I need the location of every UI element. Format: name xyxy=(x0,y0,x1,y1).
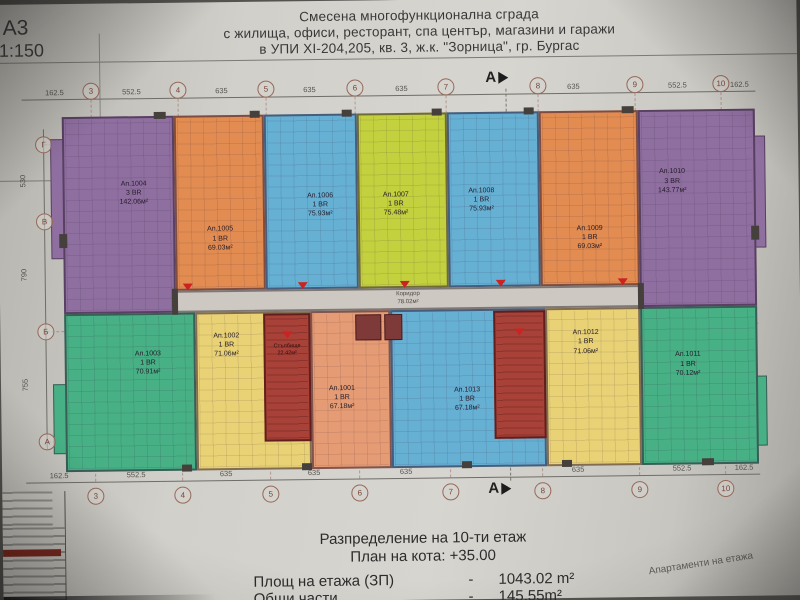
grid-column-bubble: 10 xyxy=(717,480,734,497)
grid-column-bubble: 4 xyxy=(169,82,186,99)
footer-block: Разпределение на 10-ти етаж План на кота… xyxy=(213,527,634,600)
apartment-number: Ап.1012 xyxy=(573,328,599,337)
apartment-rooms: 1 BR xyxy=(213,340,239,349)
apartment-1010: Ап.1010 3 BR 143.77м² xyxy=(638,109,757,307)
apartment-number: Ап.1005 xyxy=(207,225,233,234)
section-arrow-icon xyxy=(498,71,508,83)
adjacent-drawing-band xyxy=(3,549,61,557)
dim-label: 552.5 xyxy=(673,463,692,472)
grid-column-bubble: 3 xyxy=(82,83,99,100)
corridor-label: Коридор xyxy=(396,291,420,299)
dim-label: 162.5 xyxy=(50,471,69,480)
section-marker-bottom: А xyxy=(488,480,511,497)
apartment-rooms: 3 BR xyxy=(658,176,687,185)
grid-column-bubble: 4 xyxy=(174,487,191,504)
grid-column-bubble: 8 xyxy=(534,482,551,499)
wall-column xyxy=(751,226,759,240)
utility-room xyxy=(384,314,402,340)
dim-label: 635 xyxy=(220,469,233,478)
apartment-number: Ап.1006 xyxy=(307,191,333,200)
apartment-area: 143.77м² xyxy=(658,186,687,195)
dimension-line-left xyxy=(43,129,48,449)
apartment-area: 67.18м² xyxy=(454,403,480,412)
apartment-area: 75.93м² xyxy=(469,204,495,213)
wall-column xyxy=(154,112,166,119)
wall-column xyxy=(182,465,192,472)
apartment-rooms: 1 BR xyxy=(468,195,494,204)
wall-column xyxy=(702,458,714,465)
wall-column xyxy=(524,107,534,114)
apartment-rooms: 1 BR xyxy=(573,337,599,346)
apartment-1005: Ап.1005 1 BR 69.03м² xyxy=(174,115,266,291)
dim-label: 530 xyxy=(18,175,27,188)
grid-column-bubble: 5 xyxy=(257,81,274,98)
grid-column-bubble: 6 xyxy=(346,79,363,96)
apartment-rooms: 3 BR xyxy=(119,189,148,198)
apartment-number: Ап.1004 xyxy=(119,180,148,189)
apartment-area: 75.93м² xyxy=(307,209,333,218)
apartment-area: 67.18м² xyxy=(329,402,355,411)
adjacent-drawing-fragment xyxy=(2,491,52,528)
dim-label: 635 xyxy=(303,85,316,94)
apartment-number: Ап.1007 xyxy=(383,190,409,199)
grid-row-bubble: Б xyxy=(37,323,54,340)
grid-column-bubble: 7 xyxy=(442,483,459,500)
apartment-rooms: 1 BR xyxy=(329,393,355,402)
grid-column-bubble: 6 xyxy=(351,484,368,501)
dim-label: 635 xyxy=(572,465,585,474)
apartment-number: Ап.1011 xyxy=(675,350,701,359)
stairwell-area: 22.42м² xyxy=(274,350,301,357)
common-parts-value: 145.55m² xyxy=(499,587,563,600)
dim-label: 552.5 xyxy=(668,80,687,89)
drawing-photo: А3 1:150 Смесена многофункционална сград… xyxy=(0,0,800,600)
apartment-number: Ап.1003 xyxy=(135,349,161,358)
entrance-marker xyxy=(183,284,193,291)
section-letter: А xyxy=(488,480,499,497)
grid-row-bubble: А xyxy=(39,433,56,450)
adjacent-drawing-fragment xyxy=(3,527,66,600)
drawing-title: Смесена многофункционална сграда с жилищ… xyxy=(146,4,692,59)
entrance-marker xyxy=(400,281,410,288)
apartment-1009: Ап.1009 1 BR 69.03м² xyxy=(539,110,640,286)
common-parts-label: Общи части xyxy=(214,588,444,600)
apartment-number: Ап.1013 xyxy=(454,385,480,394)
apartment-rooms: 1 BR xyxy=(577,233,603,242)
entrance-marker xyxy=(514,328,524,335)
apartment-area: 69.03м² xyxy=(577,242,603,251)
wall-column xyxy=(172,289,178,315)
apartment-rooms: 1 BR xyxy=(454,394,480,403)
dim-label: 635 xyxy=(400,467,413,476)
grid-column-bubble: 3 xyxy=(87,488,104,505)
wall-column xyxy=(622,106,634,113)
wall-column xyxy=(462,461,472,468)
wall-column xyxy=(302,463,312,470)
side-note: Апартаменти на етажа xyxy=(648,550,754,577)
entrance-marker xyxy=(496,280,506,287)
grid-column-bubble: 7 xyxy=(437,78,454,95)
wall-column xyxy=(562,460,572,467)
entrance-marker xyxy=(298,282,308,289)
wall-column xyxy=(250,111,260,118)
entrance-marker xyxy=(282,331,292,338)
utility-room xyxy=(355,314,381,340)
wall-column xyxy=(59,234,67,248)
apartment-area: 70.12м² xyxy=(675,368,701,377)
section-arrow-icon xyxy=(501,482,511,494)
apartment-area: 75.48м² xyxy=(383,208,409,217)
dim-label: 790 xyxy=(19,269,28,282)
dim-label: 162.5 xyxy=(730,80,749,89)
wall-column xyxy=(638,283,644,309)
drawing-sheet: А3 1:150 Смесена многофункционална сград… xyxy=(0,0,800,600)
apartment-1003: Ап.1003 1 BR 70.91м² xyxy=(64,313,197,473)
apartment-1007: Ап.1007 1 BR 75.48м² xyxy=(357,112,449,288)
apartment-1011: Ап.1011 1 BR 70.12м² xyxy=(640,306,759,465)
grid-column-bubble: 10 xyxy=(712,75,729,92)
apartment-1006: Ап.1006 1 BR 75.93м² xyxy=(264,114,359,290)
apartment-area: 69.03м² xyxy=(207,243,233,252)
grid-column-bubble: 9 xyxy=(626,76,643,93)
apartment-area: 142.06м² xyxy=(120,198,149,207)
apartment-1004: Ап.1004 3 BR 142.06м² xyxy=(62,116,176,314)
apartment-area: 71.06м² xyxy=(573,346,599,355)
dim-label: 635 xyxy=(215,86,228,95)
area-value: 1043.02 m² xyxy=(498,570,574,588)
apartment-rooms: 1 BR xyxy=(675,359,701,368)
sheet-scale-label: 1:150 xyxy=(0,40,44,62)
grid-row-bubble: Г xyxy=(35,136,52,153)
apartment-number: Ап.1010 xyxy=(658,167,687,176)
apartment-number: Ап.1008 xyxy=(468,186,494,195)
dim-label: 635 xyxy=(567,82,580,91)
sheet-format-label: А3 xyxy=(3,17,29,41)
wall-column xyxy=(342,110,352,117)
dim-label: 755 xyxy=(21,379,30,392)
dim-label: 635 xyxy=(395,84,408,93)
apartment-rooms: 1 BR xyxy=(307,200,333,209)
grid-column-bubble: 5 xyxy=(262,485,279,502)
grid-row-bubble: В xyxy=(36,213,53,230)
dash: - xyxy=(444,588,499,600)
apartment-area: 71.06м² xyxy=(213,349,239,358)
section-letter: А xyxy=(485,69,496,86)
corridor-area: 78.02м² xyxy=(396,299,420,307)
apartment-rooms: 1 BR xyxy=(135,358,161,367)
apartment-number: Ап.1001 xyxy=(329,384,355,393)
entrance-marker xyxy=(618,278,628,285)
wall-column xyxy=(432,108,442,115)
dim-label: 552.5 xyxy=(127,470,146,479)
dash: - xyxy=(443,571,498,589)
grid-column-bubble: 8 xyxy=(529,77,546,94)
apartment-number: Ап.1002 xyxy=(213,331,239,340)
apartment-1008: Ап.1008 1 BR 75.93м² xyxy=(447,111,541,287)
apartment-1012: Ап.1012 1 BR 71.06м² xyxy=(545,307,642,466)
dim-label: 552.5 xyxy=(122,87,141,96)
grid-column-bubble: 9 xyxy=(631,481,648,498)
apartment-rooms: 1 BR xyxy=(207,234,233,243)
apartment-area: 70.91м² xyxy=(135,367,161,376)
apartment-rooms: 1 BR xyxy=(383,199,409,208)
dim-label: 162.5 xyxy=(45,88,64,97)
apartment-number: Ап.1009 xyxy=(577,224,603,233)
section-marker-top: А xyxy=(485,69,508,86)
dim-label: 162.5 xyxy=(735,463,754,472)
